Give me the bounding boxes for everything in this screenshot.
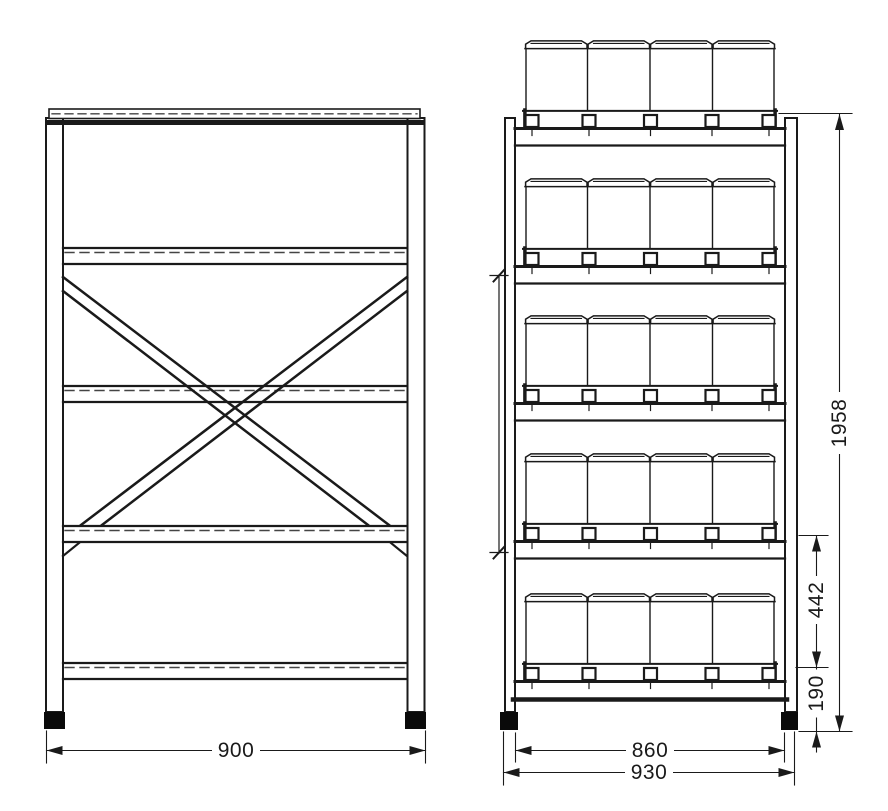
- front-left-post: [46, 118, 63, 712]
- front-right-foot: [405, 712, 426, 729]
- shelf-spacing-label: 442: [805, 582, 828, 619]
- rack-technical-drawing: 900: [0, 0, 888, 811]
- base-height-label: 190: [805, 675, 828, 712]
- front-right-post: [408, 118, 425, 712]
- front-width-label: 900: [218, 739, 255, 762]
- side-right-foot: [781, 712, 798, 730]
- side-right-post: [785, 118, 797, 712]
- side-inner-width-label: 860: [632, 739, 669, 762]
- side-left-foot: [500, 712, 518, 730]
- front-top-shelf-panel: [49, 109, 421, 123]
- side-outer-width-label: 930: [631, 761, 668, 784]
- total-height-label: 1958: [828, 399, 851, 448]
- technical-drawing-page: 900: [0, 0, 888, 811]
- side-left-post: [505, 118, 515, 712]
- front-left-foot: [44, 712, 65, 729]
